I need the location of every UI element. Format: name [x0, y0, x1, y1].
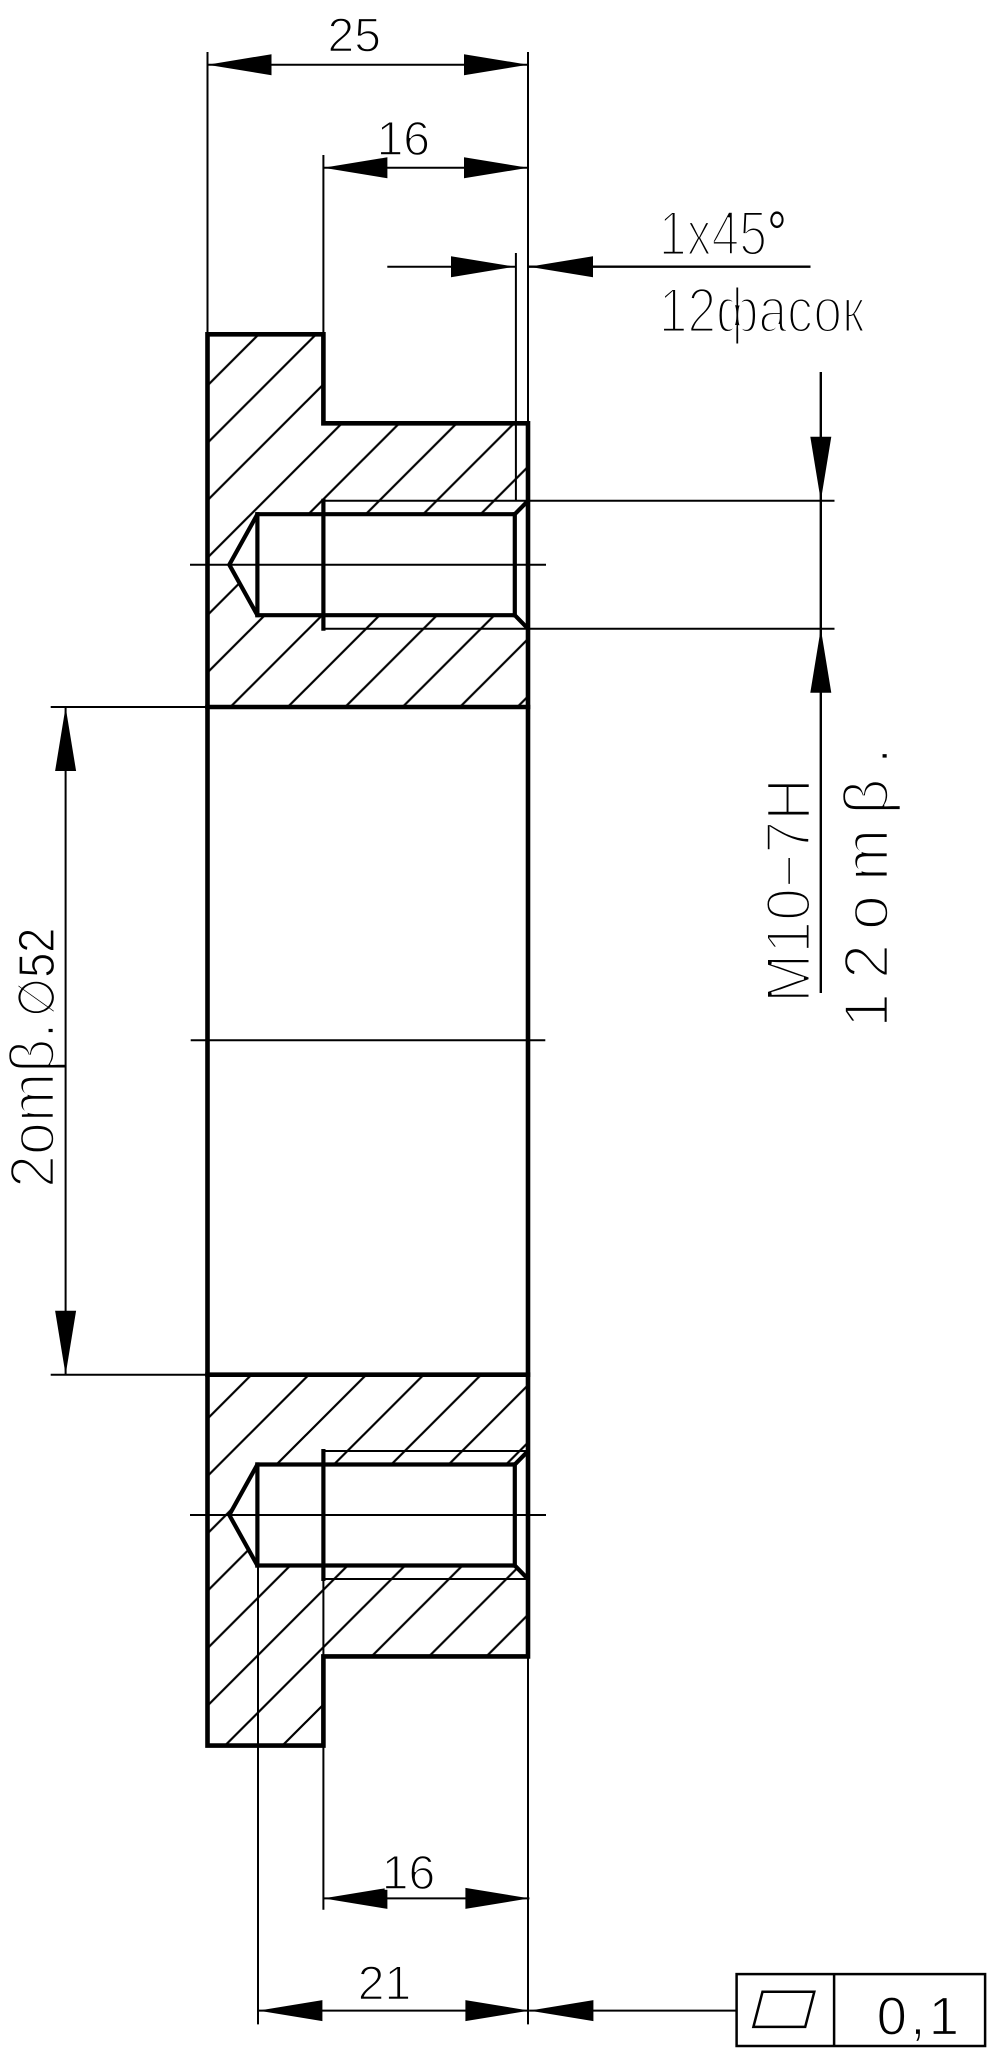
svg-text:∅52: ∅52: [8, 928, 65, 1017]
svg-text:25: 25: [328, 10, 381, 63]
svg-text:0,1: 0,1: [877, 1987, 963, 2047]
svg-text:16: 16: [382, 1847, 435, 1900]
svg-text:M10−7H: M10−7H: [753, 778, 823, 1003]
svg-text:12фасок: 12фасок: [659, 276, 865, 346]
svg-text:1x45°: 1x45°: [659, 200, 787, 270]
svg-text:12omβ.: 12omβ.: [832, 733, 902, 1028]
svg-text:2omβ.: 2omβ.: [0, 1022, 67, 1188]
svg-text:21: 21: [358, 1957, 411, 2010]
svg-text:16: 16: [377, 113, 430, 166]
